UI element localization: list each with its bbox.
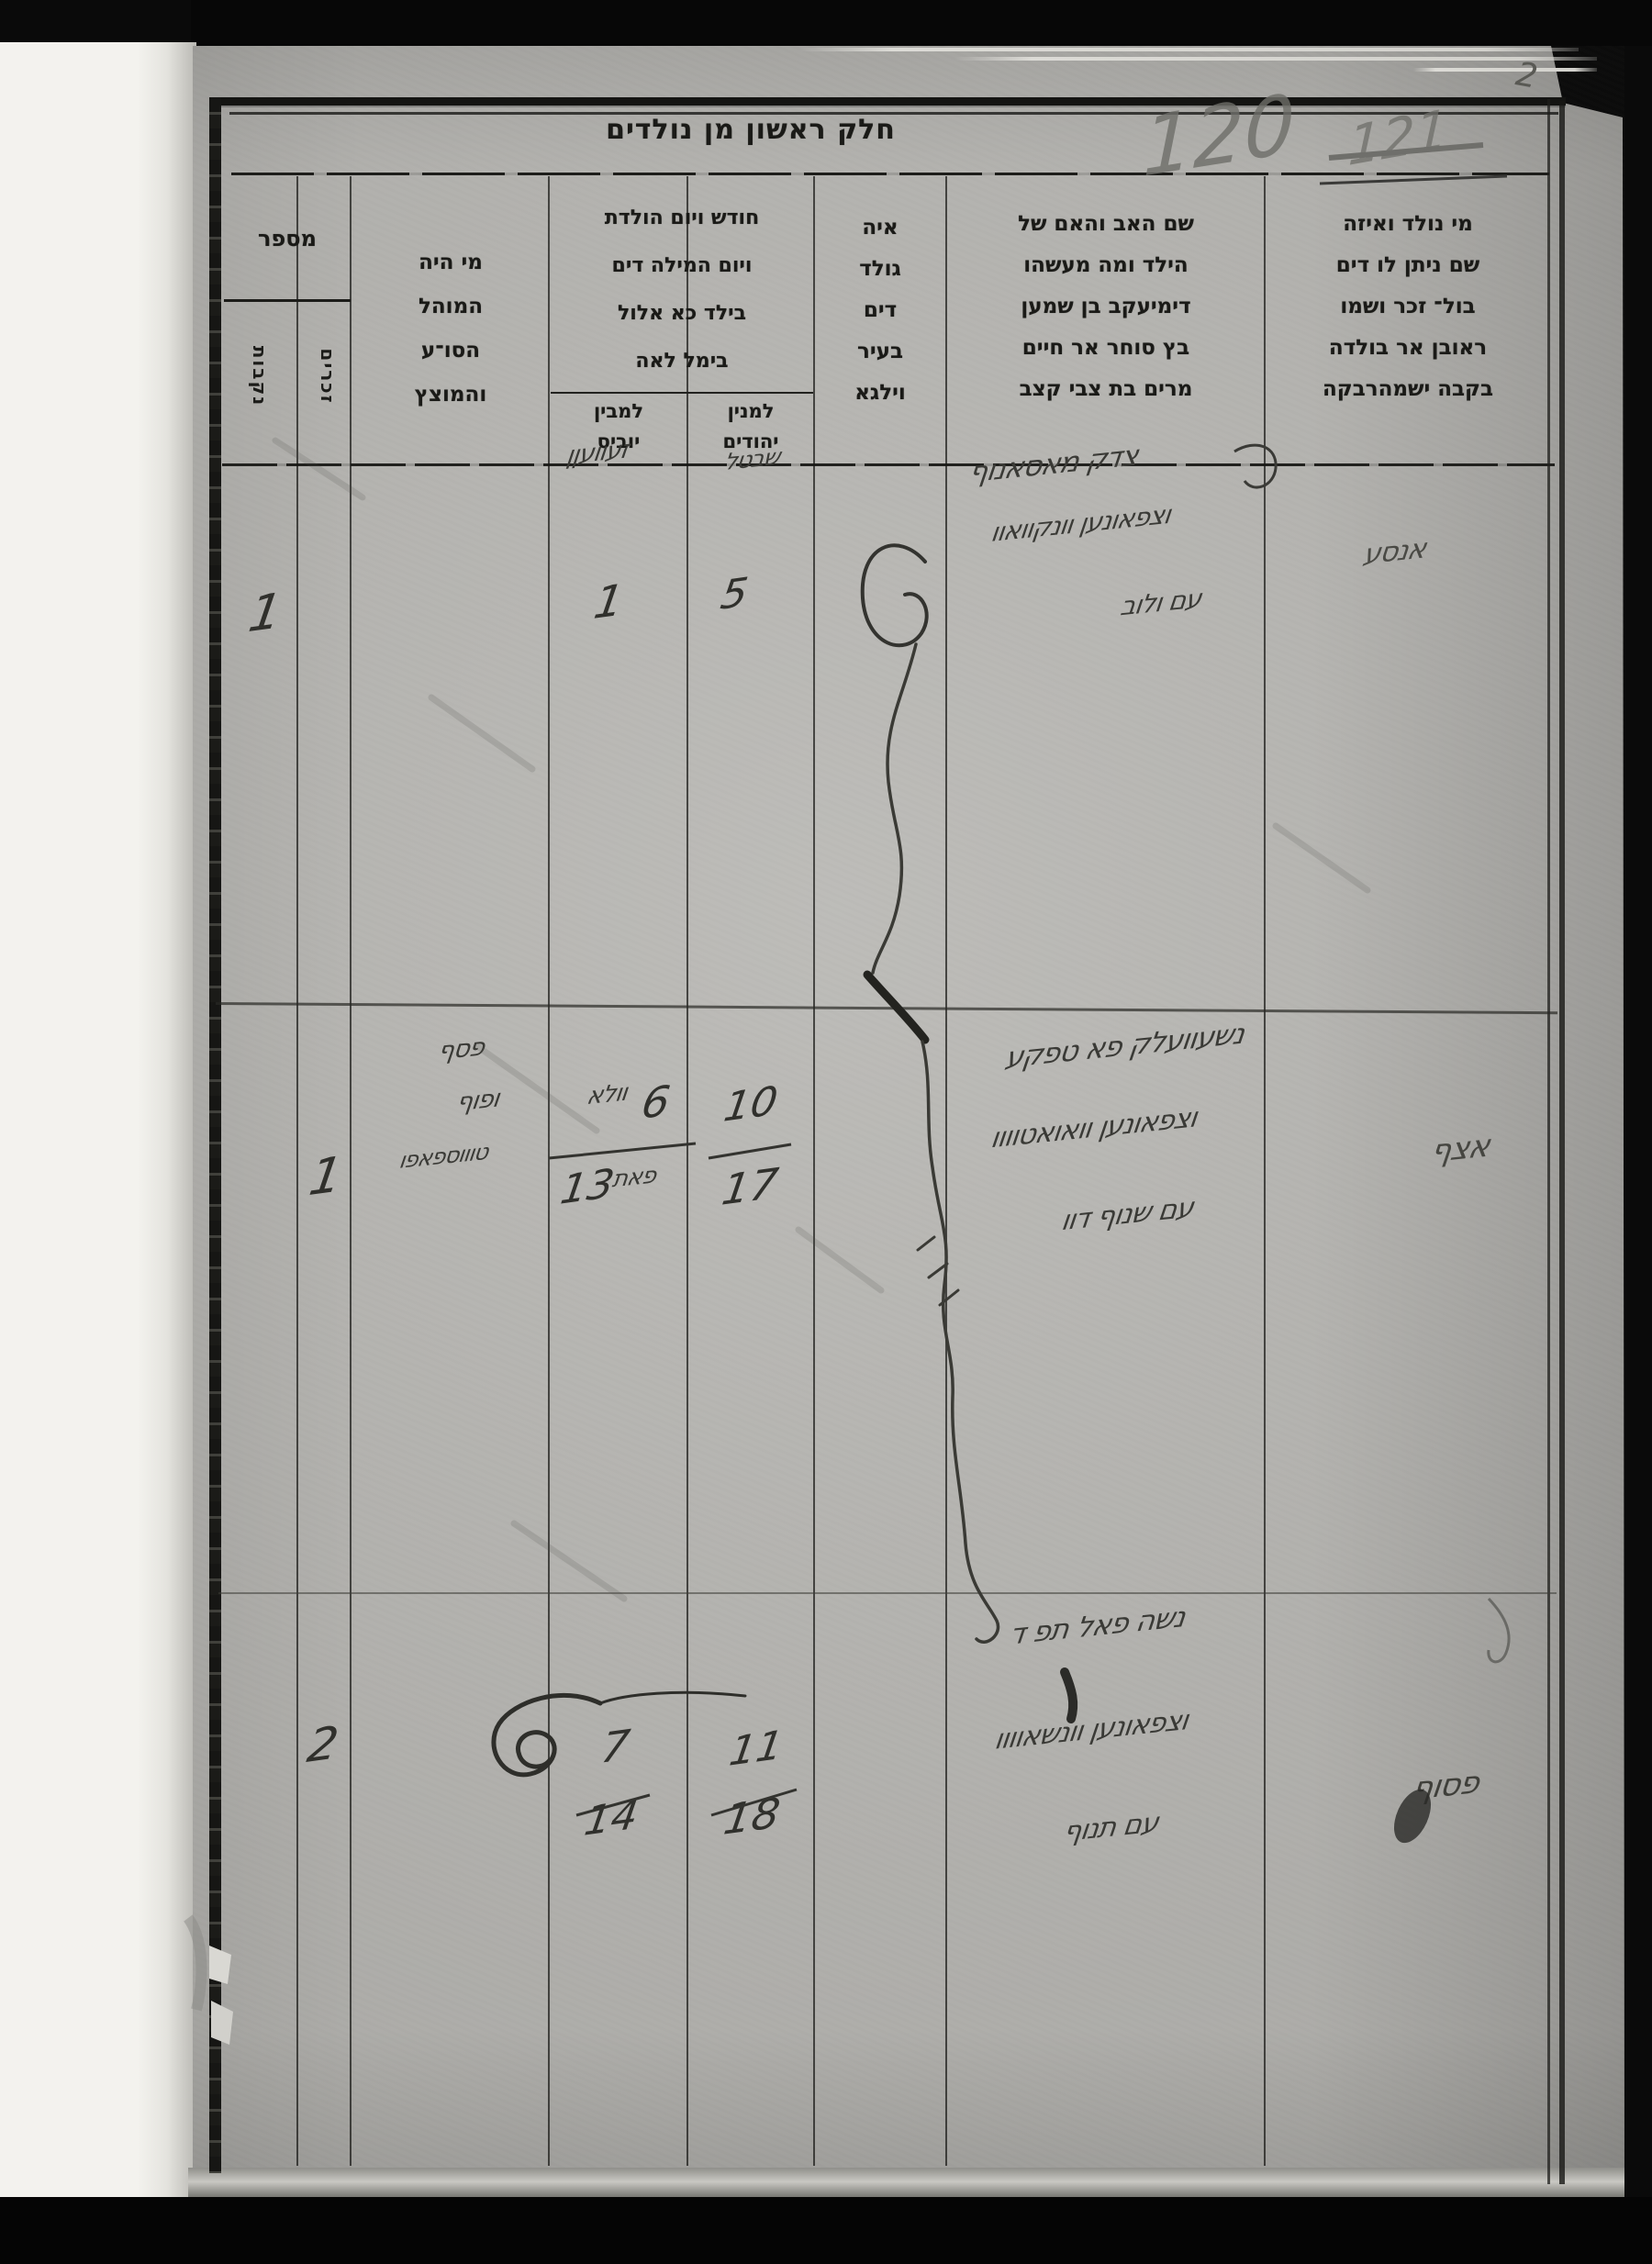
header-birthplace-column: איה גולד דים בעיר וילגא [817, 207, 943, 414]
scanner-background-top [191, 0, 1652, 46]
column-line-number [350, 176, 352, 2166]
row2-civil-word-top: וולא [585, 1079, 629, 1110]
stacked-sheet-edge [1413, 68, 1597, 72]
page-title: חלק ראשון מן נולדים [595, 114, 907, 146]
page-left-margin [0, 42, 196, 2201]
row2-civil-bris-day: 13 [557, 1160, 617, 1213]
page-bottom-edge [188, 2168, 1624, 2199]
row3-jewish-bris-day: 18 [720, 1788, 783, 1845]
scanner-background-bottom [0, 2197, 1652, 2264]
header-child-name-column: מי נולד ואיזה שם ניתן לו דים בול־ זכר וש… [1270, 204, 1546, 410]
column-line-civil-date [686, 176, 688, 2166]
scanned-register-page: חלק ראשון מן נולדים מי נולד ואיזה שם נית… [0, 0, 1652, 2264]
table-border-left [209, 97, 221, 2173]
row2-mohel-line2: ופוף [454, 1085, 500, 1118]
header-mohel-column: מי היה המוהל הסו־ע והמוצץ [356, 240, 545, 417]
row-separator-2 [218, 1592, 1557, 1594]
column-line-mohel [548, 176, 550, 2166]
row2-jewish-bris-day: 17 [719, 1158, 781, 1215]
header-date-column: חודש ויום הולדת ויום המילה דים בילד כא א… [553, 195, 811, 385]
header-number-column: מספר [226, 226, 349, 251]
date-header-split-line [551, 392, 813, 394]
table-border-right [1559, 101, 1565, 2184]
column-line-number-split [296, 176, 298, 2166]
number-header-split-line [224, 299, 351, 302]
header-bottom-line [222, 463, 1555, 466]
row2-margin-note: אצף [1428, 1128, 1491, 1170]
table-border-right-inner [1547, 99, 1550, 2184]
header-parents-column: שם האב והאם של הילד ומה מעשהו דימיעקב בן… [951, 204, 1261, 410]
column-line-parents [1264, 176, 1266, 2166]
stacked-sheet-edge [798, 48, 1579, 51]
column-line-where [945, 176, 947, 2166]
table-border-top [209, 97, 1566, 106]
column-line-jewish-date [813, 176, 815, 2166]
header-male-subcolumn: זכרים [317, 335, 339, 418]
row2-jewish-birth-day: 10 [720, 1077, 780, 1131]
stacked-sheet-edge [954, 57, 1597, 61]
row2-civil-word-bottom: פאת [610, 1162, 657, 1193]
row3-jewish-birth-day: 11 [726, 1722, 786, 1775]
row3-civil-bris-day: 14 [581, 1791, 641, 1845]
row2-mohel-line1: פסף [436, 1033, 486, 1066]
header-female-subcolumn: נקבות [249, 335, 271, 418]
